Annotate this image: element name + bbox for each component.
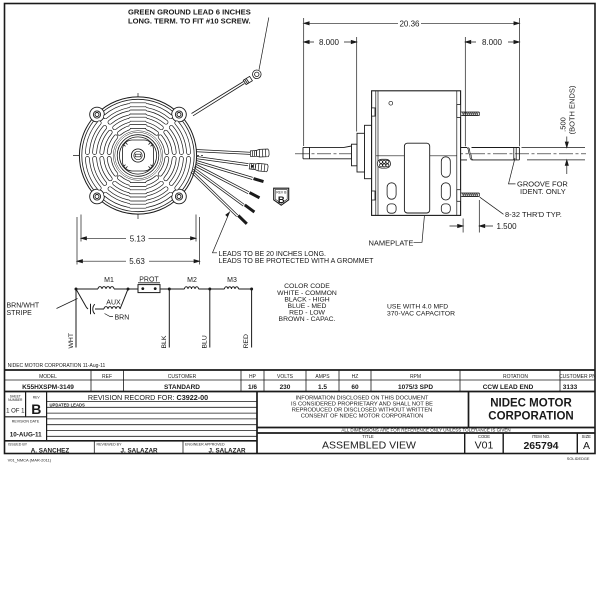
svg-text:VOLTS: VOLTS bbox=[277, 374, 294, 380]
svg-text:BLK: BLK bbox=[161, 335, 168, 348]
svg-text:UPDATED LEADS: UPDATED LEADS bbox=[50, 403, 85, 408]
svg-text:230: 230 bbox=[280, 384, 291, 391]
svg-text:WHT: WHT bbox=[68, 333, 75, 348]
svg-text:M2: M2 bbox=[187, 277, 197, 284]
svg-text:NUMBER: NUMBER bbox=[8, 398, 23, 402]
svg-text:AUX: AUX bbox=[106, 300, 121, 307]
svg-text:CONSENT OF NIDEC MOTOR CORPORA: CONSENT OF NIDEC MOTOR CORPORATION bbox=[301, 414, 424, 420]
svg-text:REVISION RECORD FOR: C3922-00: REVISION RECORD FOR: C3922-00 bbox=[88, 393, 208, 402]
svg-text:USE WITH 4.0 MFD: USE WITH 4.0 MFD bbox=[387, 304, 448, 311]
svg-text:TITLE: TITLE bbox=[362, 434, 374, 439]
svg-text:.500: .500 bbox=[559, 117, 568, 132]
svg-text:STRIPE: STRIPE bbox=[7, 310, 33, 317]
svg-text:ISSUED BY: ISSUED BY bbox=[8, 443, 28, 447]
svg-text:ROTATION: ROTATION bbox=[503, 374, 528, 380]
svg-text:GREEN GROUND LEAD 6 INCHES: GREEN GROUND LEAD 6 INCHES bbox=[128, 8, 251, 17]
svg-text:REF: REF bbox=[102, 374, 112, 380]
svg-text:MODEL: MODEL bbox=[39, 374, 57, 380]
svg-text:60: 60 bbox=[351, 384, 359, 391]
svg-text:NIDEC MOTOR CORPORATION 11-Aug: NIDEC MOTOR CORPORATION 11-Aug-11 bbox=[8, 363, 106, 369]
svg-text:10-AUG-11: 10-AUG-11 bbox=[10, 432, 42, 439]
svg-text:J. SALAZAR: J. SALAZAR bbox=[120, 447, 158, 454]
svg-text:HZ: HZ bbox=[352, 374, 359, 380]
svg-text:5.63: 5.63 bbox=[129, 257, 145, 266]
svg-text:B: B bbox=[31, 401, 41, 417]
svg-text:5.13: 5.13 bbox=[130, 234, 146, 243]
svg-text:RED: RED bbox=[243, 334, 250, 348]
svg-text:265794: 265794 bbox=[523, 440, 558, 452]
svg-text:ASSEMBLED VIEW: ASSEMBLED VIEW bbox=[322, 440, 416, 452]
svg-text:IDENT. ONLY: IDENT. ONLY bbox=[520, 187, 566, 196]
svg-text:LONG. TERM. TO FIT #10 SCREW.: LONG. TERM. TO FIT #10 SCREW. bbox=[128, 17, 251, 26]
svg-text:8.000: 8.000 bbox=[319, 38, 340, 47]
svg-text:BRN: BRN bbox=[115, 315, 130, 322]
svg-text:REVISION DATE: REVISION DATE bbox=[12, 420, 40, 424]
svg-text:J. SALAZAR: J. SALAZAR bbox=[208, 447, 246, 454]
svg-text:LEADS TO BE PROTECTED WITH A G: LEADS TO BE PROTECTED WITH A GROMMET bbox=[219, 258, 375, 265]
svg-text:PROT: PROT bbox=[139, 277, 159, 284]
svg-text:1/6: 1/6 bbox=[248, 384, 257, 391]
svg-text:1.5: 1.5 bbox=[318, 384, 327, 391]
svg-text:8-32 THR'D TYP.: 8-32 THR'D TYP. bbox=[505, 210, 562, 219]
svg-text:RPM: RPM bbox=[410, 374, 421, 380]
svg-text:HP: HP bbox=[249, 374, 257, 380]
svg-text:STANDARD: STANDARD bbox=[164, 384, 200, 391]
svg-text:B: B bbox=[278, 195, 285, 206]
svg-text:SIZE: SIZE bbox=[582, 434, 592, 439]
svg-text:A. SANCHEZ: A. SANCHEZ bbox=[31, 447, 70, 454]
svg-text:V01_NMCA (MAR-2011): V01_NMCA (MAR-2011) bbox=[8, 458, 52, 463]
svg-text:ITEM NO.: ITEM NO. bbox=[532, 434, 551, 439]
svg-text:BLU: BLU bbox=[202, 335, 209, 348]
svg-text:REV: REV bbox=[33, 396, 41, 400]
svg-text:CORPORATION: CORPORATION bbox=[488, 411, 573, 423]
svg-text:370-VAC CAPACITOR: 370-VAC CAPACITOR bbox=[387, 311, 455, 318]
svg-text:8.000: 8.000 bbox=[482, 38, 503, 47]
svg-text:LEADS TO BE 20 INCHES LONG.: LEADS TO BE 20 INCHES LONG. bbox=[219, 251, 327, 258]
svg-text:NAMEPLATE: NAMEPLATE bbox=[369, 238, 414, 247]
svg-text:A: A bbox=[583, 440, 590, 452]
svg-text:ALL DIMENSIONS ARE FOR REFEREN: ALL DIMENSIONS ARE FOR REFERENCE ONLY UN… bbox=[341, 428, 510, 433]
svg-text:M1: M1 bbox=[104, 277, 114, 284]
svg-text:1 OF 1: 1 OF 1 bbox=[6, 409, 25, 415]
svg-text:1.500: 1.500 bbox=[497, 222, 518, 231]
svg-text:M3: M3 bbox=[227, 277, 237, 284]
svg-text:NIDEC MOTOR: NIDEC MOTOR bbox=[490, 398, 572, 410]
svg-text:BRN/WHT: BRN/WHT bbox=[7, 303, 40, 310]
svg-text:3133: 3133 bbox=[563, 384, 578, 391]
svg-text:V01: V01 bbox=[475, 440, 494, 452]
svg-text:CUSTOMER PN: CUSTOMER PN bbox=[559, 374, 596, 380]
svg-text:1075/3 SPD: 1075/3 SPD bbox=[398, 384, 433, 391]
svg-text:BROWN - CAPAC.: BROWN - CAPAC. bbox=[279, 316, 336, 323]
svg-text:CCW LEAD END: CCW LEAD END bbox=[483, 384, 534, 391]
svg-text:REV B: REV B bbox=[276, 191, 287, 195]
svg-text:20.36: 20.36 bbox=[399, 19, 420, 28]
svg-text:CODE: CODE bbox=[478, 434, 490, 439]
svg-text:AMPS: AMPS bbox=[315, 374, 330, 380]
svg-text:K55HXSPM-3149: K55HXSPM-3149 bbox=[22, 384, 74, 391]
svg-text:REVIEWED BY: REVIEWED BY bbox=[97, 443, 123, 447]
svg-text:CUSTOMER: CUSTOMER bbox=[168, 374, 197, 380]
svg-text:SOLIDEDGE: SOLIDEDGE bbox=[567, 456, 590, 461]
svg-text:ENGINEER APPROVED: ENGINEER APPROVED bbox=[185, 443, 225, 447]
svg-text:(BOTH ENDS): (BOTH ENDS) bbox=[568, 85, 577, 134]
